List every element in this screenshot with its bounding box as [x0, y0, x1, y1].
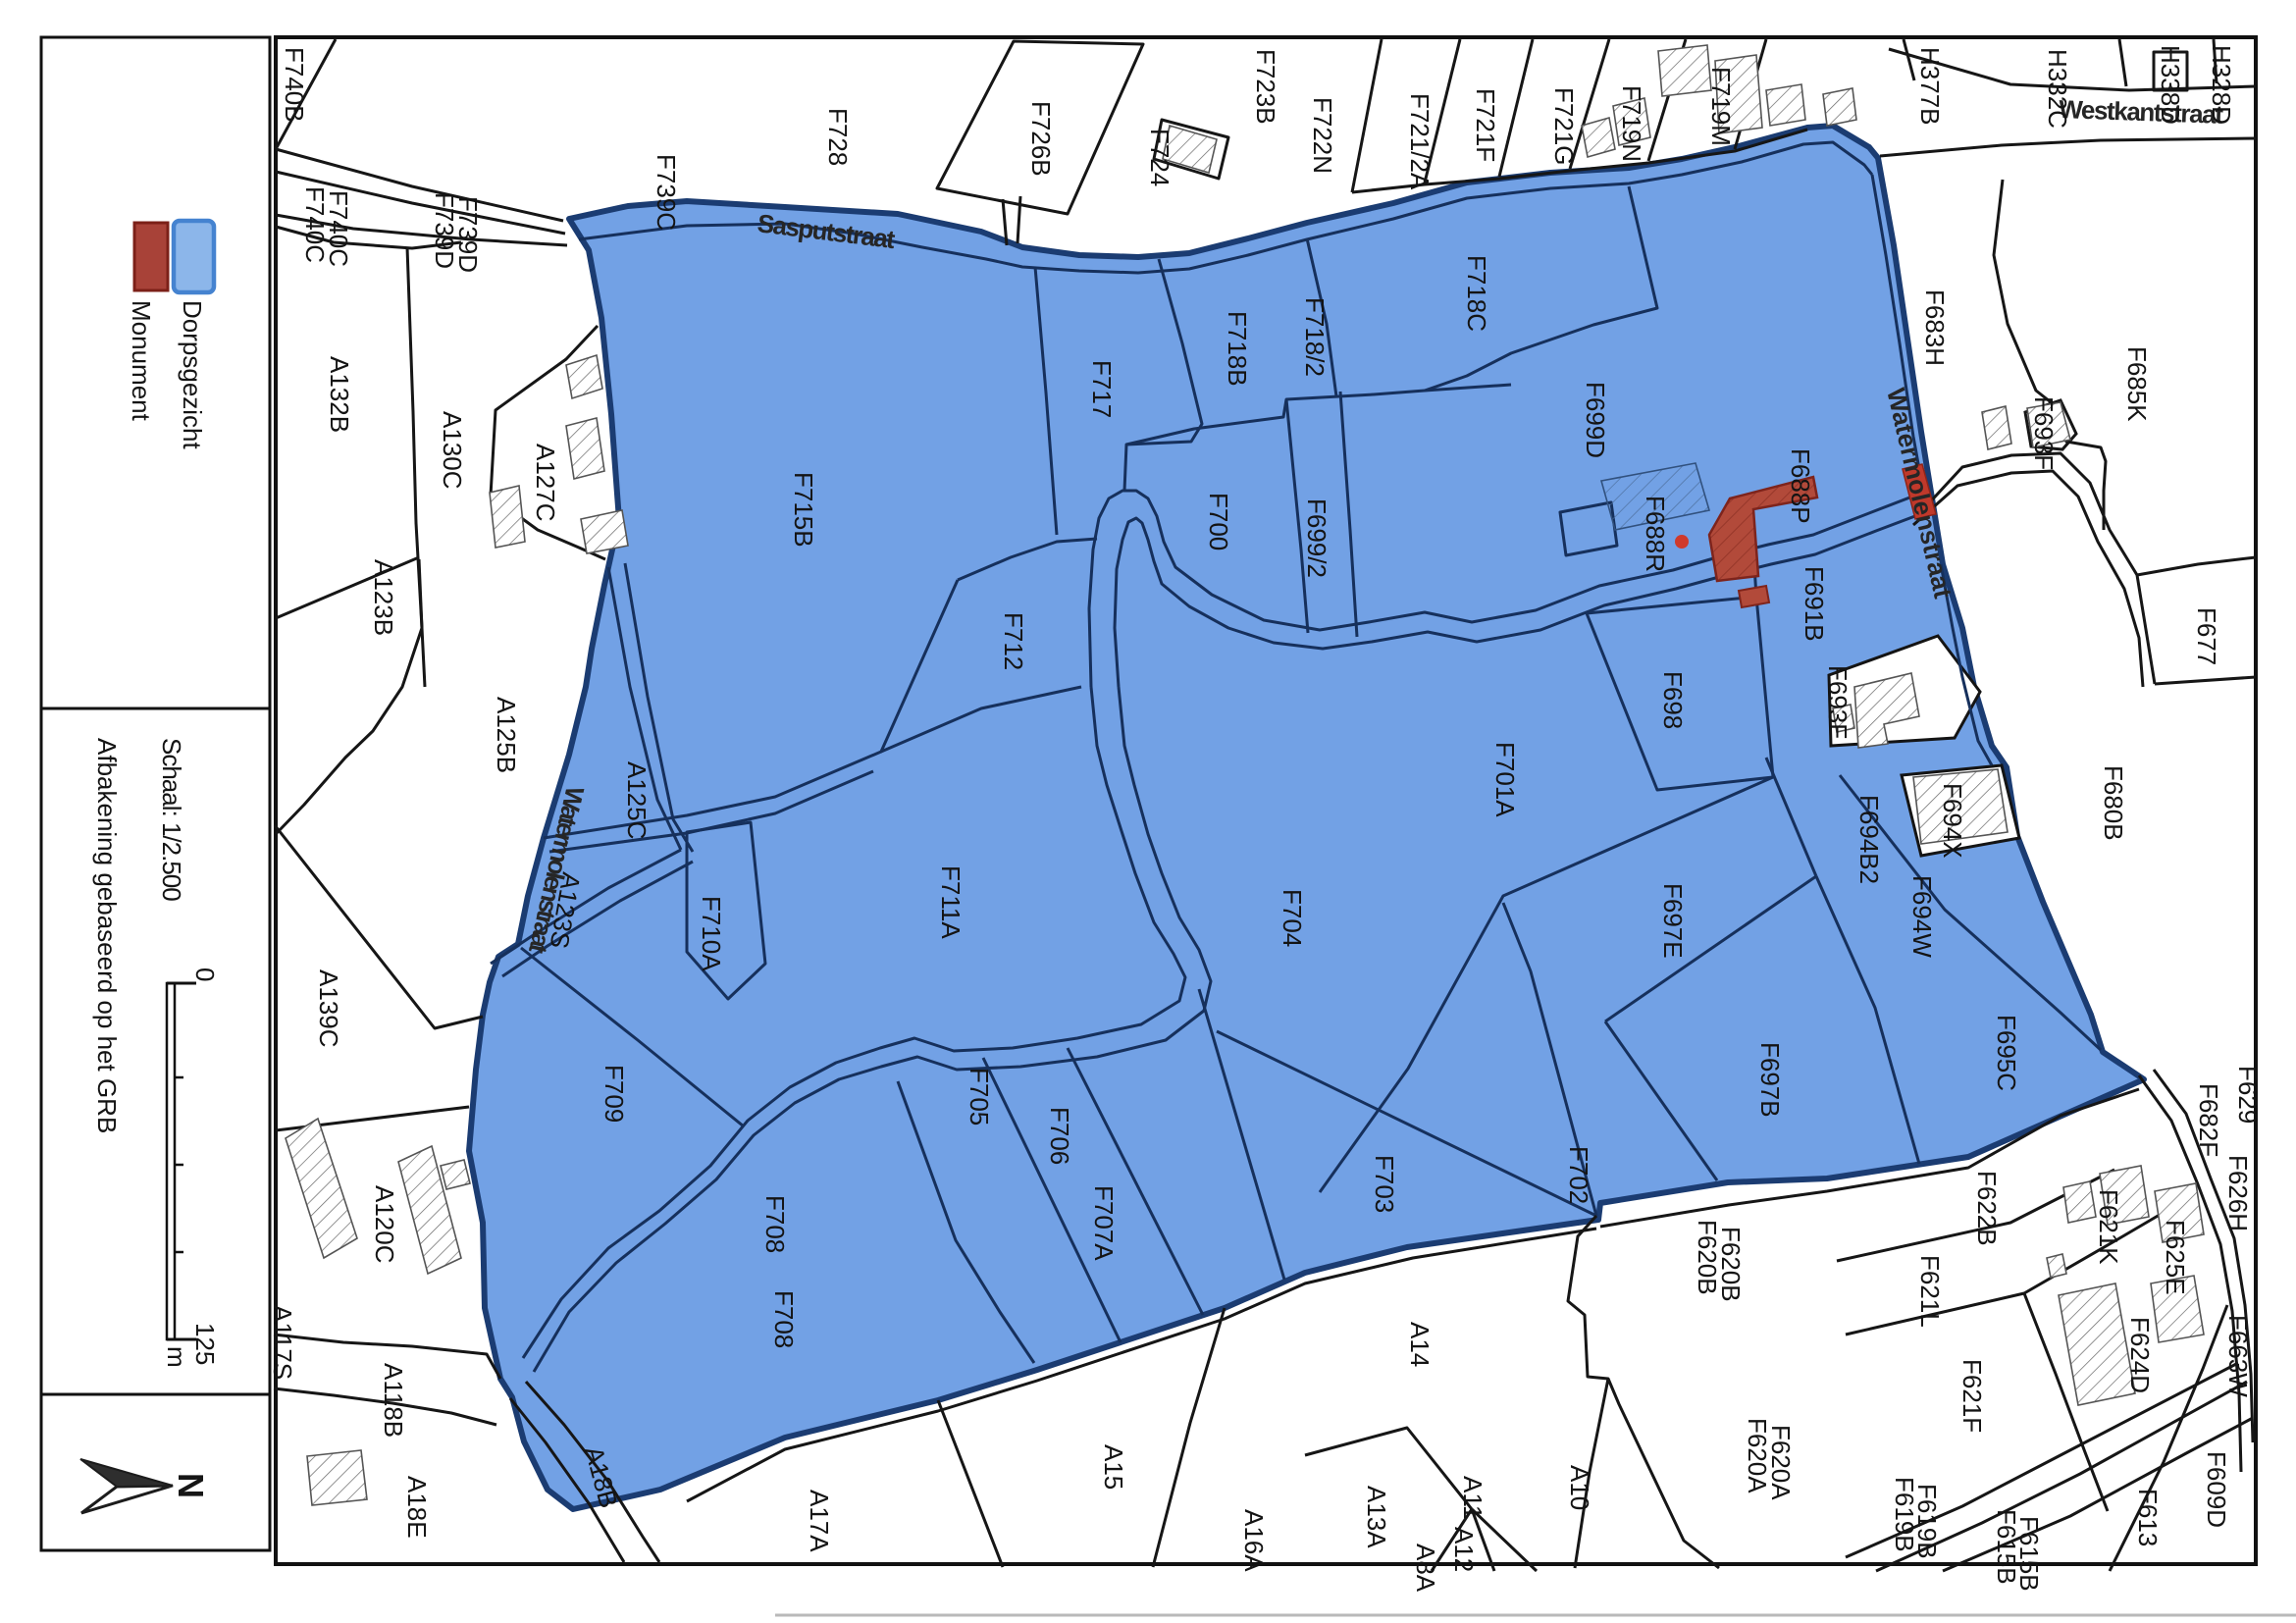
svg-text:0: 0 [190, 968, 220, 981]
svg-text:Schaal: 1/2.500: Schaal: 1/2.500 [157, 738, 186, 901]
svg-text:Afbakening gebaseerd op het GR: Afbakening gebaseerd op het GRB [92, 738, 122, 1133]
svg-text:F705: F705 [965, 1068, 994, 1126]
svg-text:A16A: A16A [1239, 1509, 1269, 1572]
svg-text:H338D: H338D [2156, 45, 2185, 125]
svg-text:F620B: F620B [1716, 1227, 1746, 1302]
svg-text:F622B: F622B [1972, 1171, 2002, 1246]
svg-text:A12: A12 [1449, 1527, 1479, 1572]
svg-text:A132B: A132B [325, 356, 354, 433]
svg-text:A125C: A125C [622, 761, 652, 840]
svg-text:A10: A10 [1565, 1465, 1594, 1510]
svg-text:F619B: F619B [1912, 1484, 1942, 1559]
svg-text:F663W: F663W [2223, 1315, 2253, 1397]
svg-text:F621L: F621L [1915, 1255, 1945, 1328]
svg-text:F722N: F722N [1308, 97, 1337, 174]
svg-text:F712: F712 [999, 612, 1028, 670]
svg-text:F715B: F715B [789, 472, 818, 548]
svg-text:F702: F702 [1564, 1146, 1593, 1204]
svg-text:F709: F709 [600, 1065, 629, 1123]
svg-text:125: 125 [190, 1323, 220, 1365]
svg-text:F717: F717 [1087, 360, 1117, 418]
svg-text:F707A: F707A [1089, 1185, 1119, 1261]
svg-text:F693F: F693F [1823, 665, 1852, 739]
svg-text:F688P: F688P [1786, 448, 1815, 524]
svg-text:F721F: F721F [1471, 88, 1500, 162]
svg-text:F677: F677 [2192, 607, 2221, 665]
svg-text:F697E: F697E [1658, 883, 1688, 959]
svg-text:Monument: Monument [127, 300, 156, 422]
svg-text:F711A: F711A [936, 865, 965, 939]
svg-text:F629: F629 [2233, 1066, 2263, 1124]
svg-text:A127C: A127C [531, 444, 560, 522]
svg-text:F624D: F624D [2125, 1317, 2155, 1393]
svg-text:A18E: A18E [402, 1476, 432, 1539]
svg-text:F697B: F697B [1755, 1042, 1785, 1118]
svg-text:A125B: A125B [492, 697, 521, 773]
svg-text:Dorpsgezicht: Dorpsgezicht [178, 300, 207, 450]
svg-text:F682F: F682F [2194, 1083, 2223, 1157]
svg-text:A117S: A117S [268, 1305, 297, 1380]
svg-text:F621F: F621F [1957, 1359, 1987, 1433]
svg-text:F726B: F726B [1026, 101, 1056, 177]
svg-text:F694W: F694W [1907, 875, 1937, 958]
svg-text:F708: F708 [760, 1195, 790, 1253]
svg-text:F621K: F621K [2094, 1189, 2123, 1265]
svg-text:A15: A15 [1099, 1444, 1128, 1490]
svg-text:F701A: F701A [1490, 742, 1520, 817]
svg-text:F620A: F620A [1766, 1425, 1796, 1500]
svg-text:A130C: A130C [438, 411, 467, 490]
svg-text:A13A: A13A [1362, 1486, 1391, 1548]
svg-text:H332C: H332C [2043, 49, 2072, 129]
svg-text:F703: F703 [1370, 1155, 1399, 1213]
svg-text:F718/2: F718/2 [1300, 297, 1330, 377]
svg-text:F688R: F688R [1641, 496, 1670, 572]
svg-text:F683H: F683H [1920, 289, 1950, 366]
svg-text:H377B: H377B [1915, 47, 1945, 126]
svg-text:Westkantstraat: Westkantstraat [2059, 94, 2224, 130]
svg-text:F609D: F609D [2202, 1451, 2231, 1528]
svg-text:A11: A11 [1458, 1476, 1487, 1519]
svg-text:F739C: F739C [652, 154, 681, 231]
svg-text:F694X: F694X [1938, 783, 1967, 859]
svg-text:F615B: F615B [2014, 1516, 2044, 1592]
svg-text:F680B: F680B [2099, 765, 2128, 841]
svg-text:F698: F698 [1658, 671, 1688, 729]
svg-text:F626H: F626H [2223, 1155, 2253, 1231]
svg-text:A8A: A8A [1411, 1544, 1440, 1593]
svg-text:F740C: F740C [324, 190, 353, 267]
svg-text:F724: F724 [1145, 129, 1174, 186]
svg-text:F693F: F693F [2029, 396, 2059, 470]
svg-text:F723B: F723B [1251, 49, 1280, 125]
svg-text:F740B: F740B [280, 47, 309, 123]
svg-text:F721G: F721G [1549, 87, 1579, 166]
svg-text:F695C: F695C [1992, 1015, 2021, 1091]
svg-text:F625E: F625E [2161, 1220, 2190, 1295]
svg-text:F710A: F710A [697, 896, 726, 971]
svg-text:F708: F708 [769, 1290, 799, 1348]
svg-text:A17A: A17A [805, 1490, 834, 1552]
svg-text:F721/2A: F721/2A [1405, 93, 1435, 190]
svg-text:F694B2: F694B2 [1854, 795, 1884, 884]
svg-text:A120C: A120C [370, 1185, 399, 1264]
svg-text:A118B: A118B [379, 1363, 408, 1438]
svg-text:H328D: H328D [2207, 45, 2236, 125]
svg-text:F739D: F739D [453, 196, 483, 273]
svg-text:F728: F728 [823, 108, 853, 166]
svg-text:F719M: F719M [1706, 67, 1736, 146]
svg-text:A14: A14 [1405, 1322, 1435, 1367]
svg-text:F719N: F719N [1617, 85, 1646, 162]
svg-text:F700: F700 [1204, 493, 1233, 550]
svg-text:F718C: F718C [1462, 255, 1491, 332]
svg-text:F699D: F699D [1581, 382, 1610, 458]
svg-text:m: m [162, 1346, 191, 1368]
svg-text:N: N [171, 1473, 211, 1498]
svg-text:A139C: A139C [314, 969, 343, 1048]
svg-text:F706: F706 [1045, 1107, 1074, 1165]
svg-text:A123B: A123B [369, 559, 398, 636]
svg-text:F699/2: F699/2 [1302, 498, 1331, 578]
svg-text:F613: F613 [2133, 1489, 2163, 1546]
svg-text:F685K: F685K [2122, 346, 2152, 422]
svg-text:F691B: F691B [1800, 566, 1829, 642]
svg-text:F704: F704 [1278, 889, 1307, 947]
svg-text:F718B: F718B [1223, 311, 1252, 387]
